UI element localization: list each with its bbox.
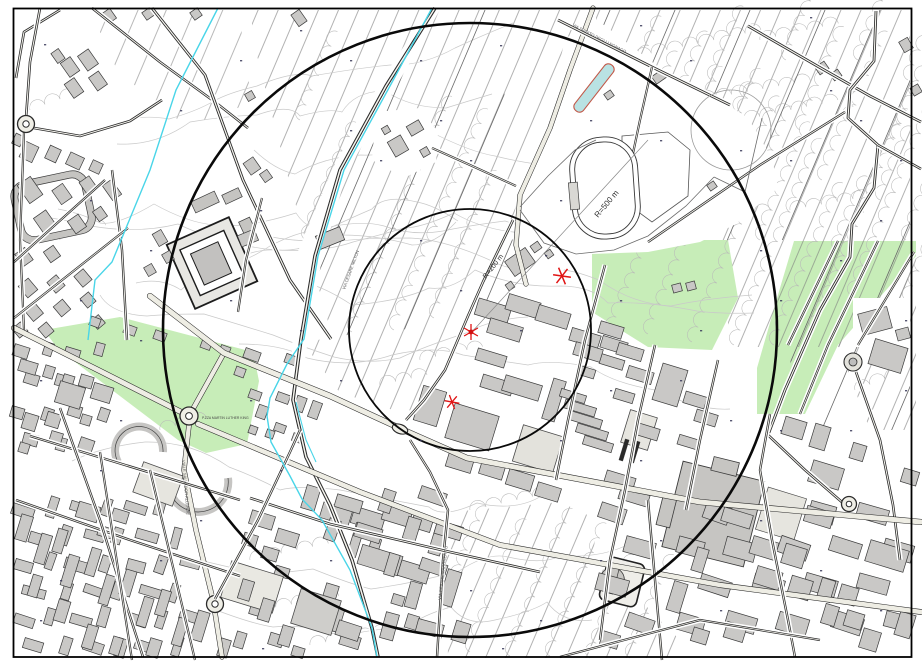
svg-text:P.ZZA MARTIN LUTHER KING: P.ZZA MARTIN LUTHER KING [202, 416, 249, 420]
